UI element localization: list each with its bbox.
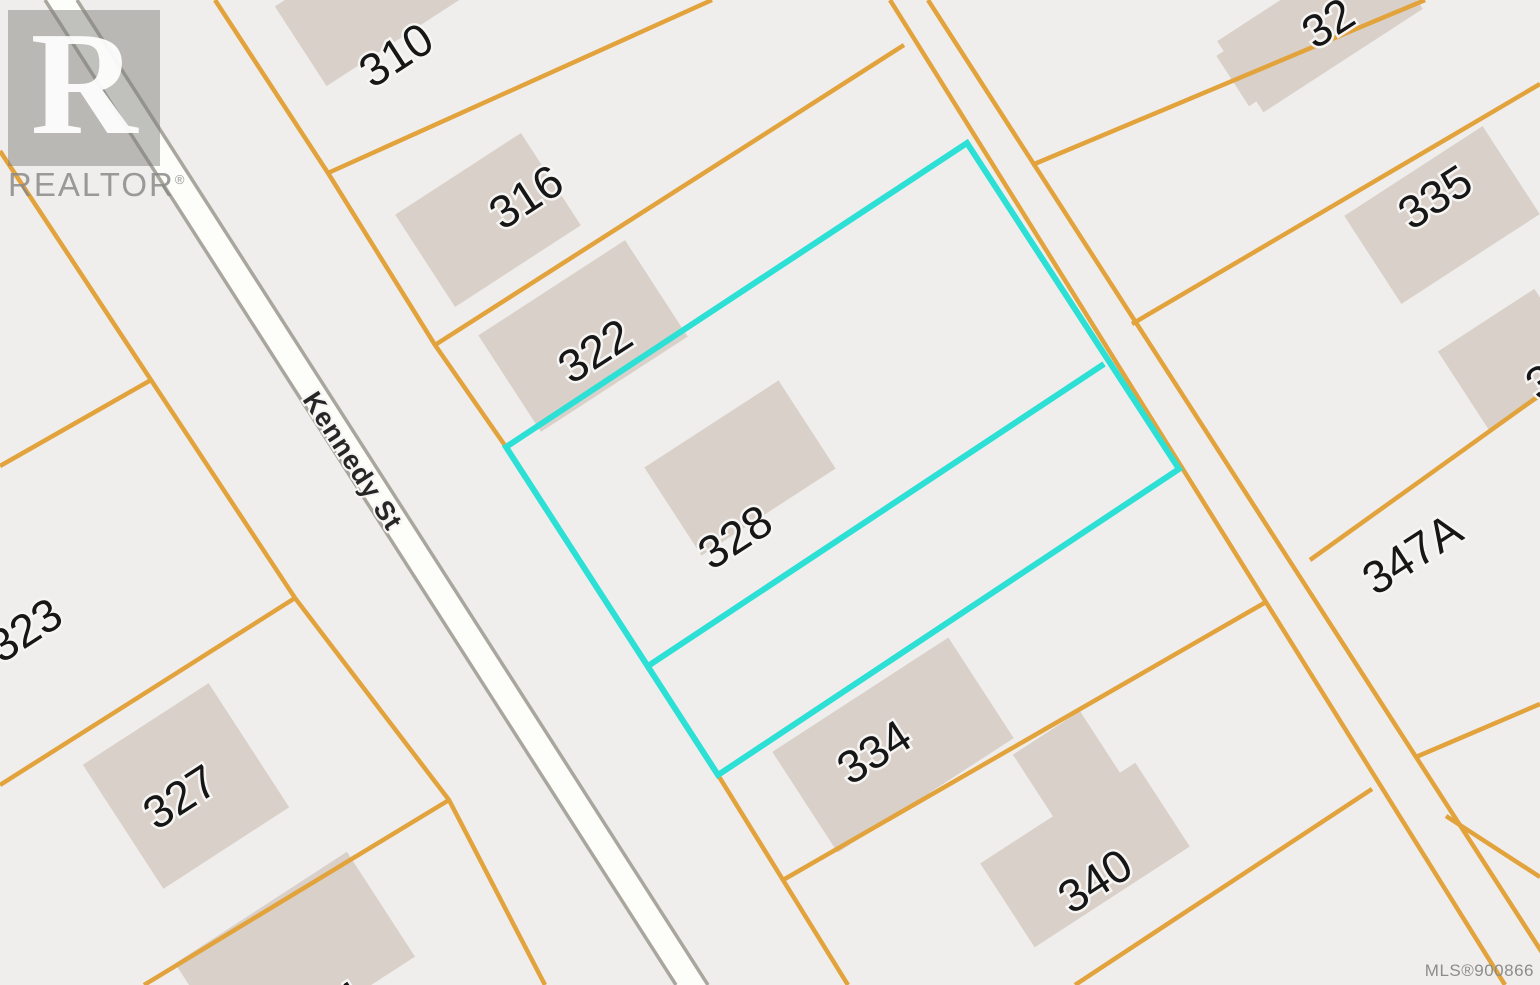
plat-map-svg: 310316322328334340335347A3273233234Kenne…	[0, 0, 1540, 985]
map-canvas: 310316322328334340335347A3273233234Kenne…	[0, 0, 1540, 985]
mls-number: MLS®900866	[1425, 961, 1534, 981]
